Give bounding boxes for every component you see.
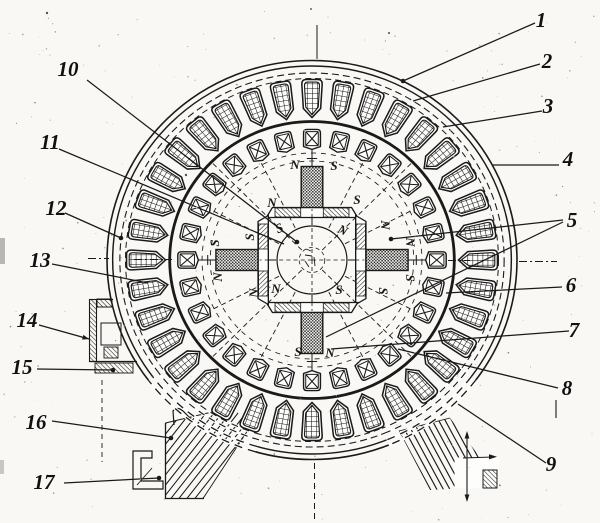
svg-text:S: S — [335, 282, 342, 297]
svg-text:1: 1 — [536, 8, 547, 32]
svg-text:5: 5 — [567, 208, 578, 232]
svg-text:12: 12 — [46, 196, 68, 220]
svg-text:14: 14 — [17, 308, 38, 332]
svg-text:17: 17 — [34, 470, 57, 494]
svg-text:S: S — [376, 287, 391, 294]
svg-text:S: S — [353, 192, 360, 207]
svg-text:8: 8 — [562, 376, 573, 400]
svg-text:S: S — [207, 239, 222, 246]
svg-text:4: 4 — [562, 147, 574, 171]
svg-text:13: 13 — [30, 248, 51, 272]
svg-text:2: 2 — [541, 49, 553, 73]
svg-text:10: 10 — [58, 57, 80, 81]
svg-text:N: N — [289, 157, 300, 172]
svg-text:N: N — [266, 195, 277, 210]
svg-text:N: N — [210, 272, 225, 283]
svg-text:N: N — [246, 288, 261, 299]
svg-text:S: S — [403, 274, 418, 281]
svg-text:6: 6 — [566, 273, 577, 297]
svg-text:N: N — [270, 281, 281, 296]
svg-text:16: 16 — [26, 410, 48, 434]
svg-text:S: S — [294, 344, 301, 359]
svg-text:S: S — [330, 158, 337, 173]
svg-text:3: 3 — [542, 94, 554, 118]
svg-text:9: 9 — [546, 452, 557, 476]
svg-text:N: N — [324, 345, 335, 360]
svg-text:11: 11 — [40, 130, 60, 154]
svg-text:15: 15 — [12, 355, 33, 379]
svg-text:N: N — [378, 219, 393, 230]
svg-text:7: 7 — [569, 318, 581, 342]
svg-text:S: S — [242, 233, 257, 240]
